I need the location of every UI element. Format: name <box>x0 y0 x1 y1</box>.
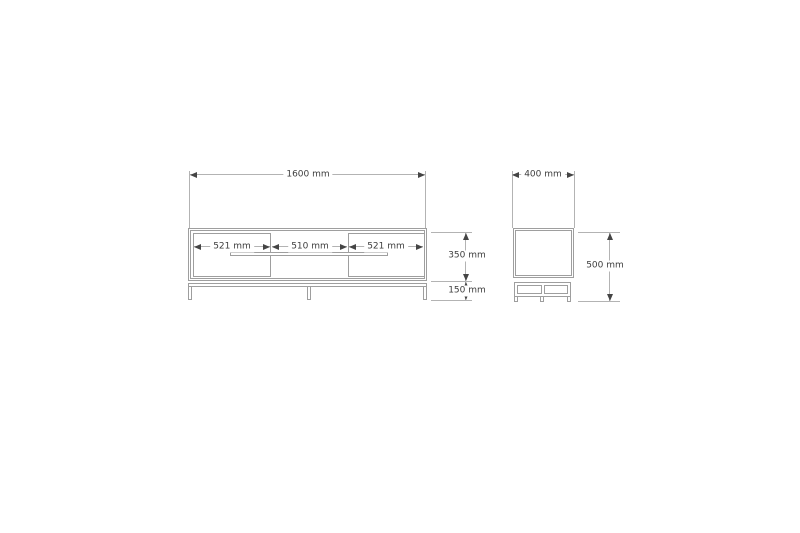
dim-label-right-door-width: 521 mm <box>364 242 408 253</box>
arrowhead-left <box>349 244 356 250</box>
extension-line-overall-right <box>425 171 426 228</box>
front-leg-middle <box>307 286 311 300</box>
dim-label-cabinet-height: 350 mm <box>445 251 489 262</box>
arrowhead-up <box>463 233 469 240</box>
arrowhead-left <box>190 172 197 178</box>
dim-label-leg-height: 150 mm <box>445 286 489 297</box>
extension-line-legs-bottom <box>431 300 472 301</box>
extension-line-depth-right <box>574 171 575 228</box>
arrowhead-left <box>512 172 519 178</box>
arrowhead-right <box>340 244 347 250</box>
side-foot-left <box>514 296 518 302</box>
side-base-frame-opening-left <box>517 285 542 294</box>
arrowhead-right <box>567 172 574 178</box>
dim-label-left-door-width: 521 mm <box>210 242 254 253</box>
front-leg-left <box>188 286 192 300</box>
extension-line-height-top <box>578 232 620 233</box>
dim-label-center-opening-width: 510 mm <box>288 242 332 253</box>
arrowhead-left <box>194 244 201 250</box>
arrowhead-right <box>416 244 423 250</box>
arrowhead-down <box>463 274 469 281</box>
extension-line-depth-left <box>512 171 513 228</box>
arrowhead-left <box>272 244 279 250</box>
arrowhead-down <box>607 294 613 301</box>
extension-line-overall-left <box>189 171 190 228</box>
arrowhead-up <box>607 233 613 240</box>
dim-label-overall-height: 500 mm <box>583 261 627 272</box>
side-foot-middle <box>540 296 544 302</box>
arrowhead-right <box>263 244 270 250</box>
dim-label-overall-width: 1600 mm <box>283 170 332 181</box>
front-leg-right <box>423 286 427 300</box>
extension-line-height-bottom <box>578 301 620 302</box>
dim-label-depth: 400 mm <box>521 170 565 181</box>
side-cabinet-inner-outline <box>515 230 572 276</box>
technical-drawing-canvas: 1600 mm 521 mm 510 mm 521 mm 350 mm 150 … <box>0 0 800 533</box>
front-handle-bar <box>230 252 388 256</box>
side-foot-right <box>567 296 571 302</box>
side-base-frame-opening-right <box>544 285 568 294</box>
arrowhead-right <box>418 172 425 178</box>
